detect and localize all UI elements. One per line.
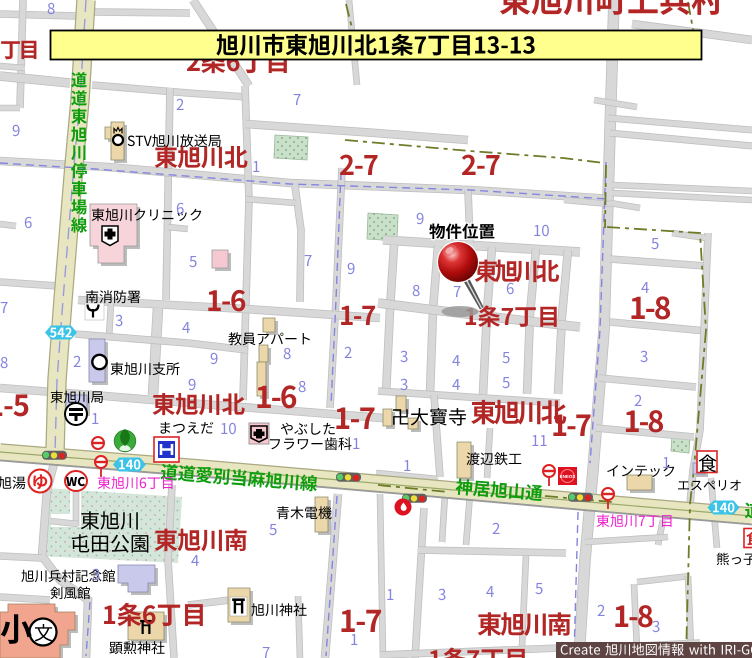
svg-text:ENEOS: ENEOS (560, 474, 576, 479)
